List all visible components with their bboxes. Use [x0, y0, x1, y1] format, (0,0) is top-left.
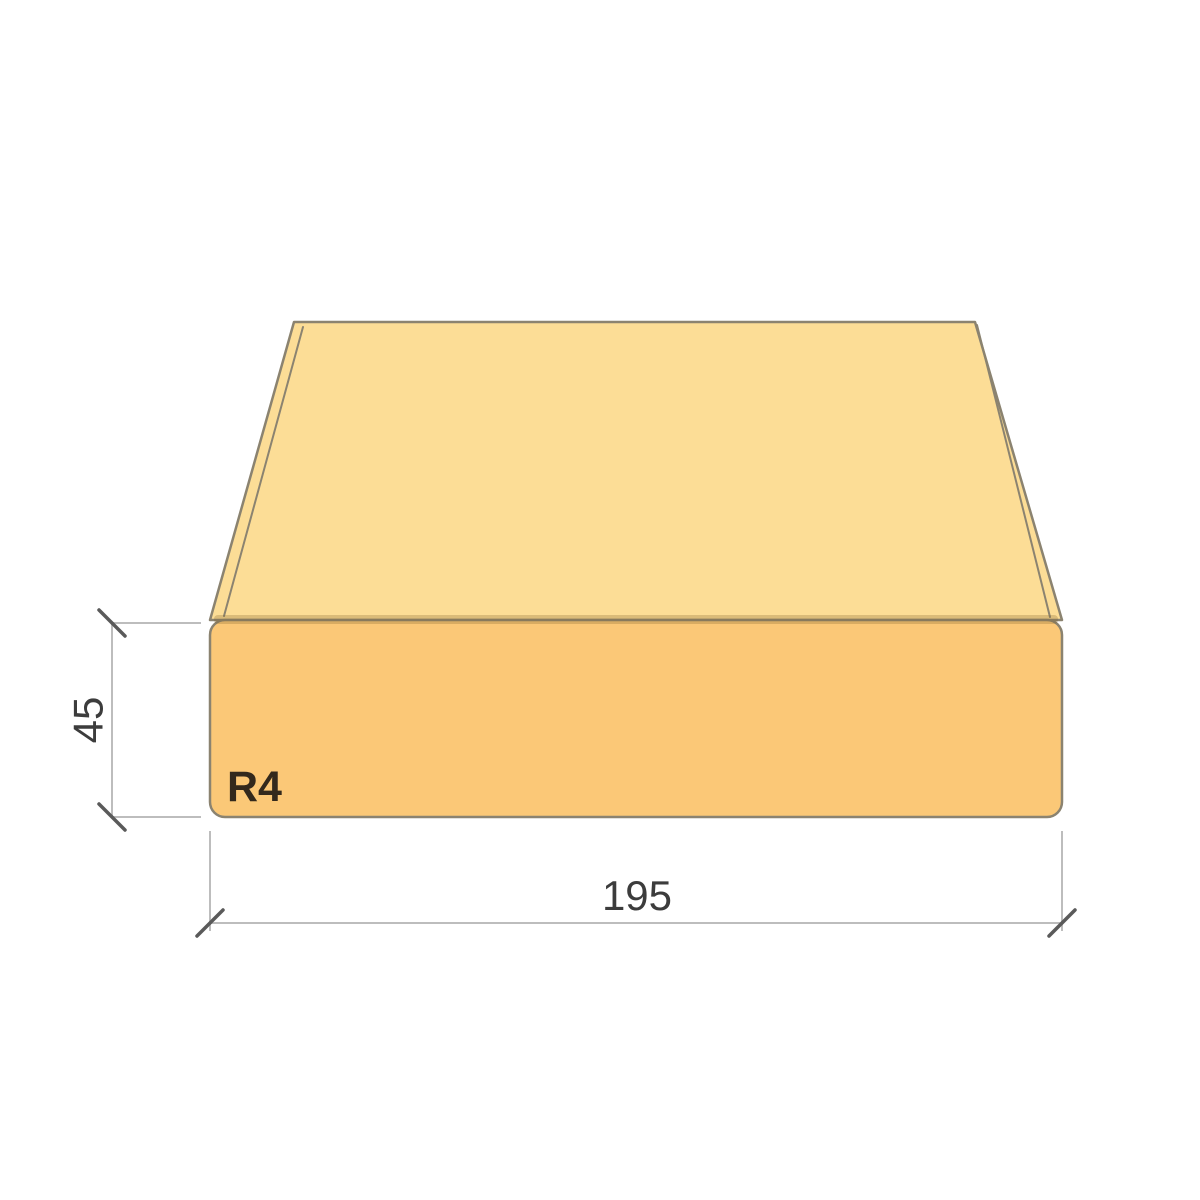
width-dimension-value: 195	[602, 872, 672, 919]
drawing-canvas: R4 45 195	[0, 0, 1200, 1200]
board-edge-shade	[214, 615, 1058, 624]
board: R4	[210, 322, 1062, 817]
board-front-face	[210, 620, 1062, 817]
board-profile-diagram: R4 45 195	[0, 0, 1200, 1200]
board-top-face	[210, 322, 1062, 620]
height-dimension: 45	[65, 610, 202, 830]
corner-radius-label: R4	[227, 763, 282, 811]
height-dimension-value: 45	[65, 697, 112, 744]
width-dimension: 195	[197, 831, 1075, 936]
